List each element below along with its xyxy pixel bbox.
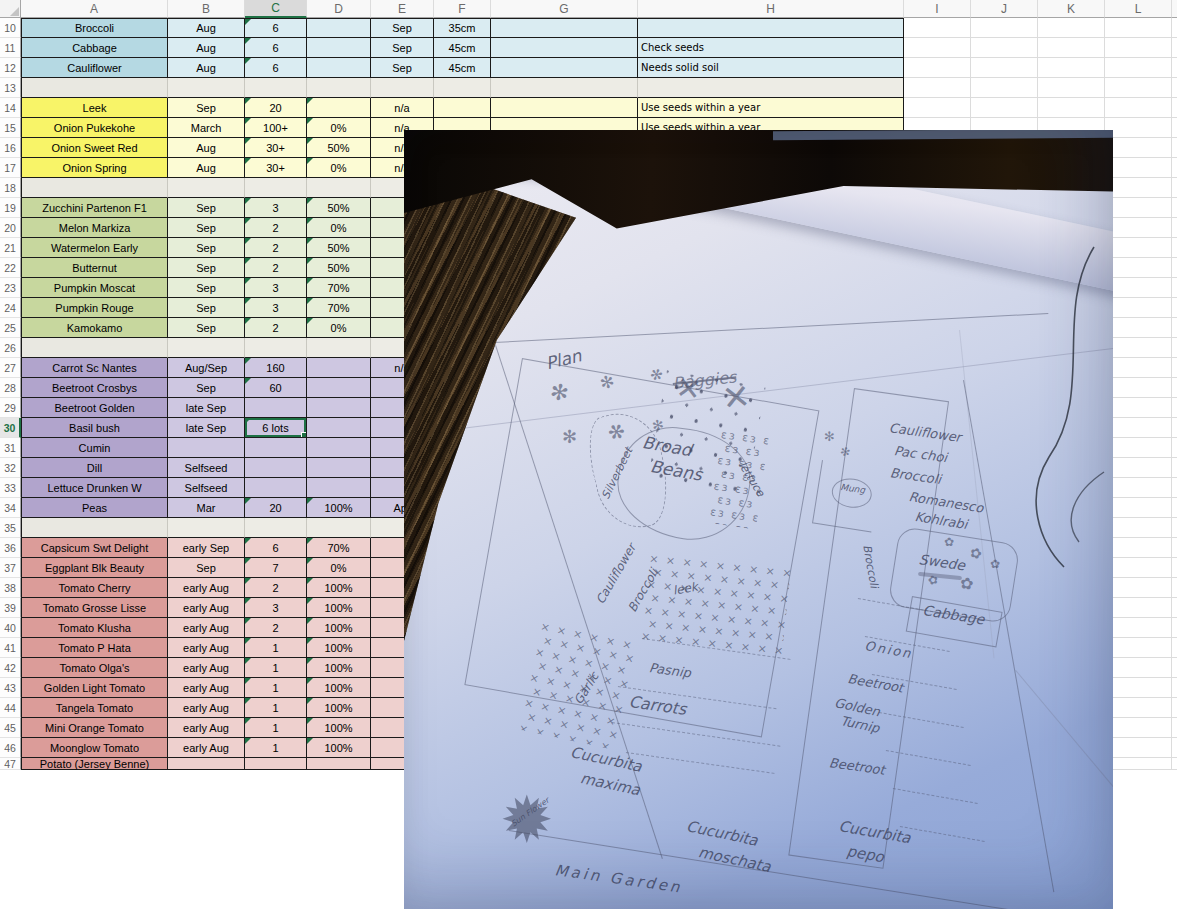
cell-C12[interactable]: 6 bbox=[245, 58, 307, 78]
cell-A15[interactable]: Onion Pukekohe bbox=[21, 118, 168, 138]
cell-L16[interactable] bbox=[1105, 138, 1172, 158]
row-header-43[interactable]: 43 bbox=[0, 678, 21, 698]
row-header-11[interactable]: 11 bbox=[0, 38, 21, 58]
cell-B38[interactable]: early Aug bbox=[168, 578, 245, 598]
cell-A43[interactable]: Golden Light Tomato bbox=[21, 678, 168, 698]
row-header-31[interactable]: 31 bbox=[0, 438, 21, 458]
cell-C18[interactable] bbox=[245, 178, 307, 198]
cell-H14[interactable]: Use seeds within a year bbox=[638, 98, 904, 118]
cell-L31[interactable] bbox=[1105, 438, 1172, 458]
cell-C17[interactable]: 30+ bbox=[245, 158, 307, 178]
cell-I14[interactable] bbox=[904, 98, 971, 118]
cell-A28[interactable]: Beetroot Crosbys bbox=[21, 378, 168, 398]
cell-F11[interactable]: 45cm bbox=[434, 38, 491, 58]
cell-L10[interactable] bbox=[1105, 18, 1172, 38]
cell-C21[interactable]: 2 bbox=[245, 238, 307, 258]
cell-stub31[interactable] bbox=[1172, 438, 1177, 458]
cell-A45[interactable]: Mini Orange Tomato bbox=[21, 718, 168, 738]
cell-C19[interactable]: 3 bbox=[245, 198, 307, 218]
cell-D21[interactable]: 50% bbox=[307, 238, 371, 258]
cell-G14[interactable] bbox=[491, 98, 638, 118]
cell-D40[interactable]: 100% bbox=[307, 618, 371, 638]
row-header-12[interactable]: 12 bbox=[0, 58, 21, 78]
row-header-45[interactable]: 45 bbox=[0, 718, 21, 738]
cell-B28[interactable]: Sep bbox=[168, 378, 245, 398]
cell-C37[interactable]: 7 bbox=[245, 558, 307, 578]
cell-C30[interactable]: 6 lots bbox=[245, 418, 307, 438]
cell-L14[interactable] bbox=[1105, 98, 1172, 118]
cell-L34[interactable] bbox=[1105, 498, 1172, 518]
cell-D34[interactable]: 100% bbox=[307, 498, 371, 518]
cell-E11[interactable]: Sep bbox=[371, 38, 434, 58]
cell-B27[interactable]: Aug/Sep bbox=[168, 358, 245, 378]
row-header-14[interactable]: 14 bbox=[0, 98, 21, 118]
cell-stub14[interactable] bbox=[1172, 98, 1177, 118]
cell-L12[interactable] bbox=[1105, 58, 1172, 78]
row-header-20[interactable]: 20 bbox=[0, 218, 21, 238]
cell-L13[interactable] bbox=[1105, 78, 1172, 98]
cell-B41[interactable]: early Aug bbox=[168, 638, 245, 658]
cell-stub26[interactable] bbox=[1172, 338, 1177, 358]
cell-stub44[interactable] bbox=[1172, 698, 1177, 718]
garden-plan-photo[interactable]: PlanBaggiesSilverbeetBroadBeanslettuceCa… bbox=[404, 130, 1113, 909]
cell-stub24[interactable] bbox=[1172, 298, 1177, 318]
cell-B24[interactable]: Sep bbox=[168, 298, 245, 318]
cell-stub23[interactable] bbox=[1172, 278, 1177, 298]
cell-L39[interactable] bbox=[1105, 598, 1172, 618]
cell-D24[interactable]: 70% bbox=[307, 298, 371, 318]
cell-D45[interactable]: 100% bbox=[307, 718, 371, 738]
cell-A44[interactable]: Tangela Tomato bbox=[21, 698, 168, 718]
cell-B36[interactable]: early Sep bbox=[168, 538, 245, 558]
cell-L11[interactable] bbox=[1105, 38, 1172, 58]
cell-B16[interactable]: Aug bbox=[168, 138, 245, 158]
column-header-G[interactable]: G bbox=[491, 0, 638, 18]
cell-B22[interactable]: Sep bbox=[168, 258, 245, 278]
column-header-L[interactable]: L bbox=[1105, 0, 1172, 18]
cell-stub39[interactable] bbox=[1172, 598, 1177, 618]
cell-D35[interactable] bbox=[307, 518, 371, 538]
column-header-E[interactable]: E bbox=[371, 0, 434, 18]
cell-L27[interactable] bbox=[1105, 358, 1172, 378]
cell-stub19[interactable] bbox=[1172, 198, 1177, 218]
cell-G13[interactable] bbox=[491, 78, 638, 98]
cell-L40[interactable] bbox=[1105, 618, 1172, 638]
cell-D39[interactable]: 100% bbox=[307, 598, 371, 618]
row-header-40[interactable]: 40 bbox=[0, 618, 21, 638]
cell-stub43[interactable] bbox=[1172, 678, 1177, 698]
cell-L17[interactable] bbox=[1105, 158, 1172, 178]
cell-D11[interactable] bbox=[307, 38, 371, 58]
cell-B46[interactable]: early Aug bbox=[168, 738, 245, 758]
cell-A17[interactable]: Onion Spring bbox=[21, 158, 168, 178]
row-header-46[interactable]: 46 bbox=[0, 738, 21, 758]
cell-A30[interactable]: Basil bush bbox=[21, 418, 168, 438]
cell-D43[interactable]: 100% bbox=[307, 678, 371, 698]
cell-K14[interactable] bbox=[1038, 98, 1105, 118]
row-header-13[interactable]: 13 bbox=[0, 78, 21, 98]
cell-L22[interactable] bbox=[1105, 258, 1172, 278]
cell-D28[interactable] bbox=[307, 378, 371, 398]
row-header-32[interactable]: 32 bbox=[0, 458, 21, 478]
cell-A13[interactable] bbox=[21, 78, 168, 98]
cell-A18[interactable] bbox=[21, 178, 168, 198]
cell-J14[interactable] bbox=[971, 98, 1038, 118]
column-header-J[interactable]: J bbox=[971, 0, 1038, 18]
cell-D30[interactable] bbox=[307, 418, 371, 438]
cell-A23[interactable]: Pumpkin Moscat bbox=[21, 278, 168, 298]
cell-B42[interactable]: early Aug bbox=[168, 658, 245, 678]
row-header-44[interactable]: 44 bbox=[0, 698, 21, 718]
cell-stub32[interactable] bbox=[1172, 458, 1177, 478]
cell-L26[interactable] bbox=[1105, 338, 1172, 358]
cell-F12[interactable]: 45cm bbox=[434, 58, 491, 78]
row-header-26[interactable]: 26 bbox=[0, 338, 21, 358]
cell-stub20[interactable] bbox=[1172, 218, 1177, 238]
cell-L41[interactable] bbox=[1105, 638, 1172, 658]
column-header-B[interactable]: B bbox=[168, 0, 245, 18]
cell-stub25[interactable] bbox=[1172, 318, 1177, 338]
cell-stub41[interactable] bbox=[1172, 638, 1177, 658]
row-header-37[interactable]: 37 bbox=[0, 558, 21, 578]
cell-D27[interactable] bbox=[307, 358, 371, 378]
cell-A11[interactable]: Cabbage bbox=[21, 38, 168, 58]
cell-I13[interactable] bbox=[904, 78, 971, 98]
cell-D47[interactable] bbox=[307, 758, 371, 770]
cell-L35[interactable] bbox=[1105, 518, 1172, 538]
cell-L47[interactable] bbox=[1105, 758, 1172, 770]
cell-C26[interactable] bbox=[245, 338, 307, 358]
row-header-29[interactable]: 29 bbox=[0, 398, 21, 418]
cell-stub11[interactable] bbox=[1172, 38, 1177, 58]
cell-C36[interactable]: 6 bbox=[245, 538, 307, 558]
cell-H12[interactable]: Needs solid soil bbox=[638, 58, 904, 78]
column-header-F[interactable]: F bbox=[434, 0, 491, 18]
cell-L29[interactable] bbox=[1105, 398, 1172, 418]
cell-B13[interactable] bbox=[168, 78, 245, 98]
column-header-D[interactable]: D bbox=[307, 0, 371, 18]
cell-C44[interactable]: 1 bbox=[245, 698, 307, 718]
cell-B23[interactable]: Sep bbox=[168, 278, 245, 298]
cell-K12[interactable] bbox=[1038, 58, 1105, 78]
cell-D13[interactable] bbox=[307, 78, 371, 98]
cell-D41[interactable]: 100% bbox=[307, 638, 371, 658]
cell-stub45[interactable] bbox=[1172, 718, 1177, 738]
cell-stub36[interactable] bbox=[1172, 538, 1177, 558]
cell-D38[interactable]: 100% bbox=[307, 578, 371, 598]
cell-B12[interactable]: Aug bbox=[168, 58, 245, 78]
cell-stub40[interactable] bbox=[1172, 618, 1177, 638]
cell-B10[interactable]: Aug bbox=[168, 18, 245, 38]
row-header-30[interactable]: 30 bbox=[0, 418, 21, 438]
cell-L37[interactable] bbox=[1105, 558, 1172, 578]
cell-A35[interactable] bbox=[21, 518, 168, 538]
cell-B30[interactable]: late Sep bbox=[168, 418, 245, 438]
cell-L45[interactable] bbox=[1105, 718, 1172, 738]
cell-D18[interactable] bbox=[307, 178, 371, 198]
cell-B39[interactable]: early Aug bbox=[168, 598, 245, 618]
cell-I11[interactable] bbox=[904, 38, 971, 58]
row-header-16[interactable]: 16 bbox=[0, 138, 21, 158]
cell-A31[interactable]: Cumin bbox=[21, 438, 168, 458]
column-header-A[interactable]: A bbox=[21, 0, 168, 18]
row-header-27[interactable]: 27 bbox=[0, 358, 21, 378]
row-header-21[interactable]: 21 bbox=[0, 238, 21, 258]
row-header-10[interactable]: 10 bbox=[0, 18, 21, 38]
cell-B34[interactable]: Mar bbox=[168, 498, 245, 518]
cell-D22[interactable]: 50% bbox=[307, 258, 371, 278]
cell-B37[interactable]: Sep bbox=[168, 558, 245, 578]
cell-F10[interactable]: 35cm bbox=[434, 18, 491, 38]
row-header-35[interactable]: 35 bbox=[0, 518, 21, 538]
cell-L38[interactable] bbox=[1105, 578, 1172, 598]
cell-B40[interactable]: early Aug bbox=[168, 618, 245, 638]
cell-B33[interactable]: Selfseed bbox=[168, 478, 245, 498]
cell-B20[interactable]: Sep bbox=[168, 218, 245, 238]
cell-D42[interactable]: 100% bbox=[307, 658, 371, 678]
cell-D29[interactable] bbox=[307, 398, 371, 418]
cell-C29[interactable] bbox=[245, 398, 307, 418]
cell-C33[interactable] bbox=[245, 478, 307, 498]
cell-A25[interactable]: Kamokamo bbox=[21, 318, 168, 338]
cell-D14[interactable] bbox=[307, 98, 371, 118]
cell-A12[interactable]: Cauliflower bbox=[21, 58, 168, 78]
cell-stub46[interactable] bbox=[1172, 738, 1177, 758]
cell-G11[interactable] bbox=[491, 38, 638, 58]
cell-A27[interactable]: Carrot Sc Nantes bbox=[21, 358, 168, 378]
cell-A41[interactable]: Tomato P Hata bbox=[21, 638, 168, 658]
cell-B18[interactable] bbox=[168, 178, 245, 198]
cell-A38[interactable]: Tomato Cherry bbox=[21, 578, 168, 598]
cell-D17[interactable]: 0% bbox=[307, 158, 371, 178]
cell-L36[interactable] bbox=[1105, 538, 1172, 558]
cell-H13[interactable] bbox=[638, 78, 904, 98]
selection-fill-handle[interactable] bbox=[301, 432, 307, 438]
cell-G10[interactable] bbox=[491, 18, 638, 38]
cell-C11[interactable]: 6 bbox=[245, 38, 307, 58]
cell-stub30[interactable] bbox=[1172, 418, 1177, 438]
cell-B29[interactable]: late Sep bbox=[168, 398, 245, 418]
cell-C32[interactable] bbox=[245, 458, 307, 478]
cell-C27[interactable]: 160 bbox=[245, 358, 307, 378]
cell-L43[interactable] bbox=[1105, 678, 1172, 698]
row-header-23[interactable]: 23 bbox=[0, 278, 21, 298]
cell-J12[interactable] bbox=[971, 58, 1038, 78]
cell-F13[interactable] bbox=[434, 78, 491, 98]
cell-A46[interactable]: Moonglow Tomato bbox=[21, 738, 168, 758]
cell-B43[interactable]: early Aug bbox=[168, 678, 245, 698]
row-header-41[interactable]: 41 bbox=[0, 638, 21, 658]
column-header-I[interactable]: I bbox=[904, 0, 971, 18]
row-header-33[interactable]: 33 bbox=[0, 478, 21, 498]
cell-C40[interactable]: 2 bbox=[245, 618, 307, 638]
cell-stub15[interactable] bbox=[1172, 118, 1177, 138]
cell-D12[interactable] bbox=[307, 58, 371, 78]
cell-C20[interactable]: 2 bbox=[245, 218, 307, 238]
cell-A36[interactable]: Capsicum Swt Delight bbox=[21, 538, 168, 558]
cell-E14[interactable]: n/a bbox=[371, 98, 434, 118]
cell-B32[interactable]: Selfseed bbox=[168, 458, 245, 478]
cell-stub29[interactable] bbox=[1172, 398, 1177, 418]
cell-stub28[interactable] bbox=[1172, 378, 1177, 398]
cell-D44[interactable]: 100% bbox=[307, 698, 371, 718]
cell-D37[interactable]: 0% bbox=[307, 558, 371, 578]
cell-A19[interactable]: Zucchini Partenon F1 bbox=[21, 198, 168, 218]
cell-A16[interactable]: Onion Sweet Red bbox=[21, 138, 168, 158]
row-header-15[interactable]: 15 bbox=[0, 118, 21, 138]
cell-A34[interactable]: Peas bbox=[21, 498, 168, 518]
cell-B26[interactable] bbox=[168, 338, 245, 358]
cell-stub35[interactable] bbox=[1172, 518, 1177, 538]
cell-B19[interactable]: Sep bbox=[168, 198, 245, 218]
cell-A29[interactable]: Beetroot Golden bbox=[21, 398, 168, 418]
row-header-25[interactable]: 25 bbox=[0, 318, 21, 338]
cell-K10[interactable] bbox=[1038, 18, 1105, 38]
cell-L30[interactable] bbox=[1105, 418, 1172, 438]
cell-D32[interactable] bbox=[307, 458, 371, 478]
cell-J13[interactable] bbox=[971, 78, 1038, 98]
column-header-C[interactable]: C bbox=[245, 0, 307, 18]
cell-L20[interactable] bbox=[1105, 218, 1172, 238]
cell-L25[interactable] bbox=[1105, 318, 1172, 338]
cell-C31[interactable] bbox=[245, 438, 307, 458]
cell-B15[interactable]: March bbox=[168, 118, 245, 138]
cell-E10[interactable]: Sep bbox=[371, 18, 434, 38]
cell-D20[interactable]: 0% bbox=[307, 218, 371, 238]
cell-stub12[interactable] bbox=[1172, 58, 1177, 78]
cell-stub22[interactable] bbox=[1172, 258, 1177, 278]
cell-C25[interactable]: 2 bbox=[245, 318, 307, 338]
select-all-corner[interactable] bbox=[0, 0, 21, 18]
cell-C43[interactable]: 1 bbox=[245, 678, 307, 698]
cell-B14[interactable]: Sep bbox=[168, 98, 245, 118]
cell-C23[interactable]: 3 bbox=[245, 278, 307, 298]
row-header-28[interactable]: 28 bbox=[0, 378, 21, 398]
cell-A10[interactable]: Broccoli bbox=[21, 18, 168, 38]
cell-stub21[interactable] bbox=[1172, 238, 1177, 258]
row-header-42[interactable]: 42 bbox=[0, 658, 21, 678]
cell-L32[interactable] bbox=[1105, 458, 1172, 478]
cell-A22[interactable]: Butternut bbox=[21, 258, 168, 278]
cell-C15[interactable]: 100+ bbox=[245, 118, 307, 138]
cell-F14[interactable] bbox=[434, 98, 491, 118]
cell-L18[interactable] bbox=[1105, 178, 1172, 198]
cell-I12[interactable] bbox=[904, 58, 971, 78]
cell-stub13[interactable] bbox=[1172, 78, 1177, 98]
cell-stub33[interactable] bbox=[1172, 478, 1177, 498]
cell-L42[interactable] bbox=[1105, 658, 1172, 678]
cell-A37[interactable]: Eggplant Blk Beauty bbox=[21, 558, 168, 578]
cell-C45[interactable]: 1 bbox=[245, 718, 307, 738]
cell-C16[interactable]: 30+ bbox=[245, 138, 307, 158]
cell-stub10[interactable] bbox=[1172, 18, 1177, 38]
cell-stub34[interactable] bbox=[1172, 498, 1177, 518]
cell-L33[interactable] bbox=[1105, 478, 1172, 498]
cell-D31[interactable] bbox=[307, 438, 371, 458]
cell-G12[interactable] bbox=[491, 58, 638, 78]
cell-C35[interactable] bbox=[245, 518, 307, 538]
row-header-47[interactable]: 47 bbox=[0, 758, 21, 770]
cell-C34[interactable]: 20 bbox=[245, 498, 307, 518]
cell-A26[interactable] bbox=[21, 338, 168, 358]
cell-A21[interactable]: Watermelon Early bbox=[21, 238, 168, 258]
row-header-24[interactable]: 24 bbox=[0, 298, 21, 318]
cell-L21[interactable] bbox=[1105, 238, 1172, 258]
cell-C13[interactable] bbox=[245, 78, 307, 98]
cell-C10[interactable]: 6 bbox=[245, 18, 307, 38]
cell-A32[interactable]: Dill bbox=[21, 458, 168, 478]
cell-C22[interactable]: 2 bbox=[245, 258, 307, 278]
cell-D25[interactable]: 0% bbox=[307, 318, 371, 338]
cell-B44[interactable]: early Aug bbox=[168, 698, 245, 718]
cell-C28[interactable]: 60 bbox=[245, 378, 307, 398]
cell-D36[interactable]: 70% bbox=[307, 538, 371, 558]
cell-I10[interactable] bbox=[904, 18, 971, 38]
cell-C42[interactable]: 1 bbox=[245, 658, 307, 678]
row-header-38[interactable]: 38 bbox=[0, 578, 21, 598]
row-header-34[interactable]: 34 bbox=[0, 498, 21, 518]
row-header-17[interactable]: 17 bbox=[0, 158, 21, 178]
cell-C47[interactable] bbox=[245, 758, 307, 770]
cell-C46[interactable]: 1 bbox=[245, 738, 307, 758]
cell-D26[interactable] bbox=[307, 338, 371, 358]
cell-D46[interactable]: 100% bbox=[307, 738, 371, 758]
row-header-36[interactable]: 36 bbox=[0, 538, 21, 558]
cell-C41[interactable]: 1 bbox=[245, 638, 307, 658]
row-header-18[interactable]: 18 bbox=[0, 178, 21, 198]
cell-B21[interactable]: Sep bbox=[168, 238, 245, 258]
cell-stub38[interactable] bbox=[1172, 578, 1177, 598]
cell-K11[interactable] bbox=[1038, 38, 1105, 58]
cell-stub37[interactable] bbox=[1172, 558, 1177, 578]
cell-A39[interactable]: Tomato Grosse Lisse bbox=[21, 598, 168, 618]
column-header-K[interactable]: K bbox=[1038, 0, 1105, 18]
cell-K13[interactable] bbox=[1038, 78, 1105, 98]
cell-C24[interactable]: 3 bbox=[245, 298, 307, 318]
cell-L44[interactable] bbox=[1105, 698, 1172, 718]
cell-E12[interactable]: Sep bbox=[371, 58, 434, 78]
cell-L19[interactable] bbox=[1105, 198, 1172, 218]
cell-D16[interactable]: 50% bbox=[307, 138, 371, 158]
cell-L46[interactable] bbox=[1105, 738, 1172, 758]
cell-H11[interactable]: Check seeds bbox=[638, 38, 904, 58]
cell-A40[interactable]: Tomato Klusha bbox=[21, 618, 168, 638]
cell-E13[interactable] bbox=[371, 78, 434, 98]
cell-B47[interactable] bbox=[168, 758, 245, 770]
cell-B25[interactable]: Sep bbox=[168, 318, 245, 338]
row-header-19[interactable]: 19 bbox=[0, 198, 21, 218]
cell-stub18[interactable] bbox=[1172, 178, 1177, 198]
row-header-39[interactable]: 39 bbox=[0, 598, 21, 618]
cell-stub27[interactable] bbox=[1172, 358, 1177, 378]
cell-J11[interactable] bbox=[971, 38, 1038, 58]
cell-A33[interactable]: Lettuce Drunken W bbox=[21, 478, 168, 498]
cell-D23[interactable]: 70% bbox=[307, 278, 371, 298]
cell-stub16[interactable] bbox=[1172, 138, 1177, 158]
cell-B31[interactable] bbox=[168, 438, 245, 458]
column-header-H[interactable]: H bbox=[638, 0, 904, 18]
cell-D33[interactable] bbox=[307, 478, 371, 498]
cell-L23[interactable] bbox=[1105, 278, 1172, 298]
cell-D15[interactable]: 0% bbox=[307, 118, 371, 138]
cell-J10[interactable] bbox=[971, 18, 1038, 38]
cell-A47[interactable]: Potato (Jersey Benne) bbox=[21, 758, 168, 770]
cell-stub42[interactable] bbox=[1172, 658, 1177, 678]
cell-D19[interactable]: 50% bbox=[307, 198, 371, 218]
cell-L15[interactable] bbox=[1105, 118, 1172, 138]
cell-B11[interactable]: Aug bbox=[168, 38, 245, 58]
cell-A14[interactable]: Leek bbox=[21, 98, 168, 118]
